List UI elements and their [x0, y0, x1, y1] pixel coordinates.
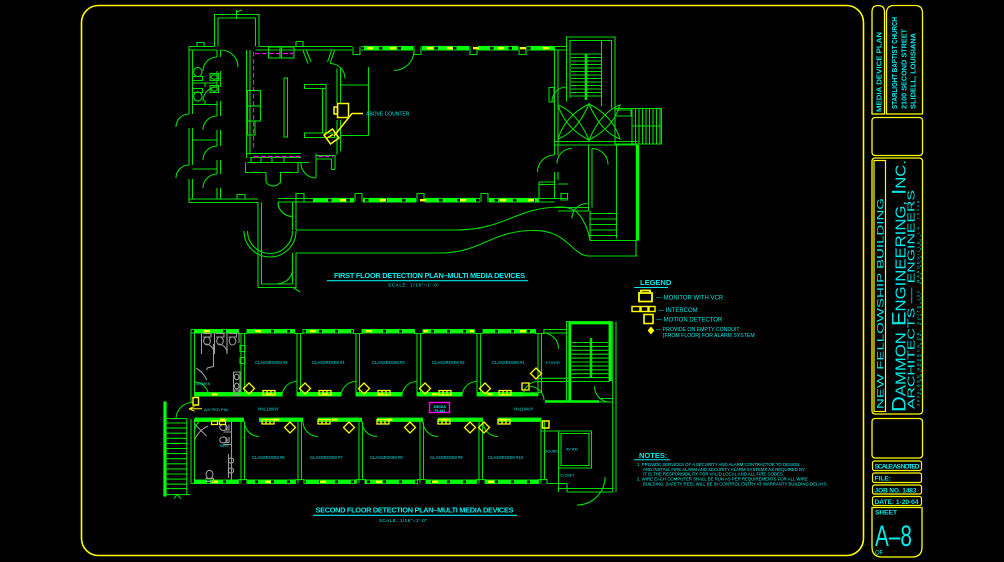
- svg-text:CLASSROOM #3: CLASSROOM #3: [372, 360, 405, 365]
- svg-text:SCALE: 1/16"=1'-0": SCALE: 1/16"=1'-0": [379, 518, 427, 523]
- svg-text:MEN: MEN: [220, 444, 228, 448]
- svg-text:CLASSROOM #4: CLASSROOM #4: [312, 360, 345, 365]
- svg-text:NOTES:: NOTES:: [639, 451, 667, 460]
- svg-text:A/V PED PNL: A/V PED PNL: [204, 407, 229, 412]
- svg-text:TELEPHONE (985) 624-5001 FAX: TELEPHONE (985) 624-5001 FAX 624-5002: [920, 235, 924, 395]
- svg-text:SOUND: SOUND: [545, 450, 558, 454]
- svg-text:AV RM: AV RM: [566, 448, 578, 452]
- svg-text:LEGEND: LEGEND: [640, 278, 672, 287]
- svg-text:SHEET: SHEET: [875, 510, 897, 517]
- svg-text:FIRST FLOOR DETECTION PLAN–MUL: FIRST FLOOR DETECTION PLAN–MULTI MEDIA D…: [334, 271, 525, 280]
- svg-text:[FROM FLOOR] FOR ALARM SYSTEM: [FROM FLOOR] FOR ALARM SYSTEM: [663, 333, 755, 339]
- svg-text:HALLWAY: HALLWAY: [514, 407, 533, 412]
- svg-text:CLOSET: CLOSET: [560, 474, 575, 478]
- svg-text:SECOND FLOOR DETECTION PLAN–MU: SECOND FLOOR DETECTION PLAN–MULTI MEDIA …: [316, 506, 514, 515]
- svg-text:PLAN: PLAN: [435, 408, 446, 413]
- svg-text:MEDIA DEVICE PLAN: MEDIA DEVICE PLAN: [877, 32, 884, 112]
- svg-text:SLIDELL, LOUISIANA: SLIDELL, LOUISIANA: [909, 33, 918, 109]
- svg-text:CLASSROOM #6: CLASSROOM #6: [252, 455, 285, 460]
- svg-text:CLASSROOM #10: CLASSROOM #10: [488, 455, 524, 460]
- svg-text:SCALE:AS NOTED: SCALE:AS NOTED: [875, 464, 920, 471]
- svg-text:ABOVE COUNTER: ABOVE COUNTER: [366, 112, 410, 118]
- svg-text:WOMEN: WOMEN: [196, 382, 211, 386]
- svg-text:— MOTION DETECTOR: — MOTION DETECTOR: [656, 318, 723, 324]
- svg-text:HALLWAY: HALLWAY: [258, 407, 279, 412]
- svg-text:— MONITOR WITH VCR: — MONITOR WITH VCR: [656, 296, 724, 302]
- svg-text:2100 SECOND STREET: 2100 SECOND STREET: [900, 28, 909, 109]
- svg-text:CLASSROOM #2: CLASSROOM #2: [432, 360, 465, 365]
- svg-text:JOB NO. 1483: JOB NO. 1483: [875, 487, 917, 494]
- svg-text:CLASSROOM #5: CLASSROOM #5: [255, 360, 288, 365]
- svg-text:FOYER: FOYER: [546, 360, 560, 365]
- svg-text:CLASSROOM #7: CLASSROOM #7: [310, 455, 343, 460]
- svg-text:A–8: A–8: [875, 520, 912, 553]
- svg-text:SCALE: 1/16"=1'-0": SCALE: 1/16"=1'-0": [388, 283, 439, 288]
- svg-text:NEW FELLOWSHIP BUILDING: NEW FELLOWSHIP BUILDING: [875, 198, 886, 409]
- svg-text:FILE:: FILE:: [875, 476, 891, 483]
- svg-text:— INTERCOM: — INTERCOM: [658, 308, 698, 314]
- svg-text:BUILDING. SAFETY REEL WILL BE: BUILDING. SAFETY REEL WILL BE IN CONTROL…: [643, 482, 828, 487]
- svg-text:OF: OF: [875, 551, 884, 557]
- svg-text:CLASSROOM #1: CLASSROOM #1: [492, 360, 525, 365]
- svg-text:STARLIGHT BAPTIST CHURCH: STARLIGHT BAPTIST CHURCH: [890, 17, 899, 109]
- svg-text:DATE: 1-20-04: DATE: 1-20-04: [875, 499, 919, 506]
- svg-text:CLASSROOM #8: CLASSROOM #8: [370, 455, 403, 460]
- svg-text:CLASSROOM #9: CLASSROOM #9: [430, 455, 463, 460]
